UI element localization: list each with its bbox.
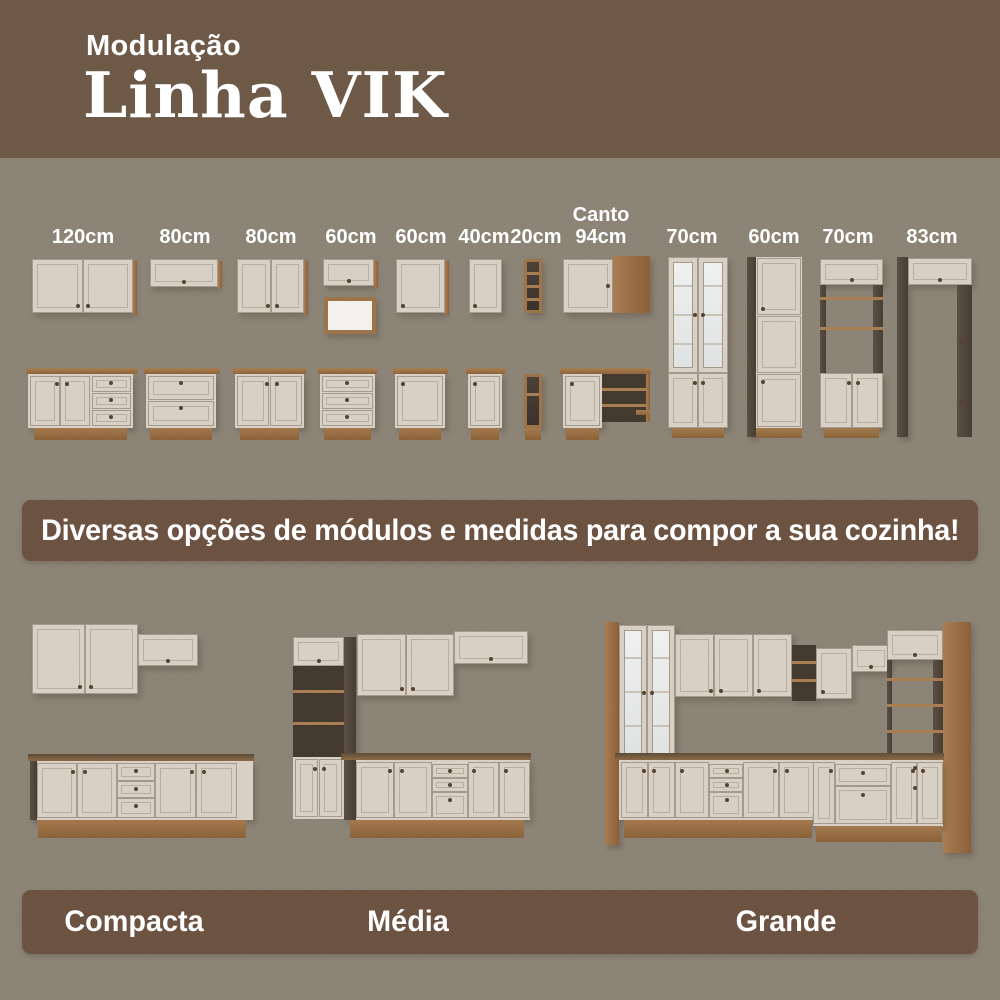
drawer-handle xyxy=(448,783,452,787)
module-canto-wall-door xyxy=(563,259,613,313)
glass-shelf xyxy=(653,691,669,693)
wood-shelf xyxy=(887,704,943,707)
door-handle xyxy=(785,769,789,773)
drawer-handle xyxy=(345,398,349,402)
wood-side-panel xyxy=(304,261,308,315)
wood-plinth xyxy=(324,428,371,440)
door-handle xyxy=(265,382,269,386)
module-40cm-wall-cabinet xyxy=(469,259,502,313)
grande-base-run-left xyxy=(619,760,814,820)
module-80cm-wall-cabinet-2door xyxy=(237,259,304,313)
door-handle xyxy=(71,770,75,774)
door-handle xyxy=(642,691,646,695)
module-label-83cm: 83cm xyxy=(892,226,972,249)
wood-side-panel xyxy=(218,261,222,289)
wood-shelf xyxy=(820,327,883,330)
module-label-canto-top: Canto xyxy=(561,204,641,227)
door-handle xyxy=(650,691,654,695)
module-label-80cm-b: 80cm xyxy=(231,226,311,249)
door-handle xyxy=(83,770,87,774)
kitchen-label-grande: Grande xyxy=(690,905,882,939)
module-60cm-wall-flip-cabinet xyxy=(323,259,374,286)
drawer-handle xyxy=(448,769,452,773)
door-handle xyxy=(693,381,697,385)
glass-shelf xyxy=(704,285,722,287)
wood-plinth xyxy=(350,820,524,838)
media-wall-flip-cabinet xyxy=(454,631,528,664)
door-handle xyxy=(757,689,761,693)
door-handle xyxy=(190,770,194,774)
wood-plinth xyxy=(816,826,942,842)
countertop xyxy=(28,754,254,761)
door-handle xyxy=(911,769,915,773)
glass-shelf xyxy=(625,725,641,727)
wood-side-panel xyxy=(374,261,378,288)
module-canto-wall-wood-return xyxy=(613,256,650,313)
wood-shelf xyxy=(293,722,344,725)
cabinet-drawer xyxy=(835,764,891,786)
module-60cm-base-cabinet xyxy=(395,374,445,428)
wood-plinth xyxy=(38,820,246,838)
door-handle xyxy=(761,307,765,311)
wood-shelf xyxy=(792,679,816,682)
module-83cm-top-cabinet xyxy=(908,258,972,285)
door-handle xyxy=(65,382,69,386)
door-handle xyxy=(179,406,183,410)
door-handle xyxy=(78,685,82,689)
module-label-70cm-a: 70cm xyxy=(652,226,732,249)
door-handle xyxy=(489,657,493,661)
wood-shelf xyxy=(527,272,539,275)
drawer-handle xyxy=(109,415,113,419)
wood-plinth xyxy=(399,428,441,440)
module-label-60cm-c: 60cm xyxy=(734,226,814,249)
module-20cm-wall-rack xyxy=(524,259,542,313)
media-tower-lower-doors xyxy=(293,757,344,819)
door-handle xyxy=(89,685,93,689)
cabinet-drawer xyxy=(432,792,468,818)
module-label-80cm-a: 80cm xyxy=(145,226,225,249)
module-label-60cm-a: 60cm xyxy=(311,226,391,249)
wood-plinth xyxy=(672,428,724,438)
countertop xyxy=(810,753,944,760)
cabinet-door xyxy=(675,634,714,697)
drawer-handle xyxy=(861,793,865,797)
wood-shelf xyxy=(602,404,646,407)
glass-shelf xyxy=(674,343,692,345)
module-canto-base-door xyxy=(563,374,602,428)
door-handle xyxy=(642,769,646,773)
wood-plinth xyxy=(525,428,541,440)
door-handle xyxy=(856,381,860,385)
media-base-run xyxy=(356,760,530,820)
module-80cm-base-cabinet xyxy=(146,374,216,428)
panel-handle xyxy=(959,400,963,404)
wood-side-panel xyxy=(943,622,971,853)
wood-shelf xyxy=(293,690,344,693)
wood-plinth xyxy=(624,820,812,838)
dark-side-panel xyxy=(30,761,37,820)
module-60cm-base-drawers xyxy=(320,374,375,428)
module-83cm-side-panel xyxy=(957,285,972,437)
door-handle xyxy=(313,767,317,771)
glass-shelf xyxy=(653,725,669,727)
media-tower-top-door xyxy=(293,637,344,666)
drawer-handle xyxy=(134,787,138,791)
door-handle xyxy=(913,653,917,657)
wood-shelf xyxy=(602,388,646,391)
wood-side-panel xyxy=(605,622,619,845)
kitchen-label-compacta: Compacta xyxy=(38,905,230,939)
door-handle xyxy=(473,382,477,386)
module-70cm-tower-top-door xyxy=(820,259,883,285)
door-handle xyxy=(570,382,574,386)
module-40cm-base-cabinet xyxy=(468,374,502,428)
cabinet-door xyxy=(757,316,801,373)
door-handle xyxy=(821,690,825,694)
glass-shelf xyxy=(625,657,641,659)
cabinet-door xyxy=(753,634,792,697)
dark-side-panel xyxy=(933,660,943,755)
wood-plinth xyxy=(824,428,879,438)
wood-side-panel xyxy=(133,261,137,315)
cabinet-drawer xyxy=(117,798,155,818)
door-handle xyxy=(850,278,854,282)
wood-plinth xyxy=(566,428,599,440)
drawer-handle xyxy=(448,798,452,802)
door-handle xyxy=(400,687,404,691)
banner: Diversas opções de módulos e medidas par… xyxy=(22,500,978,561)
door-handle xyxy=(472,769,476,773)
page-background: Modulação Linha VIK 120cm 80cm 80cm 60cm… xyxy=(0,0,1000,1000)
glass-shelf xyxy=(704,343,722,345)
wood-shelf xyxy=(527,298,539,301)
drawer-handle xyxy=(725,769,729,773)
compacta-base-run xyxy=(30,761,253,820)
grande-wall-door-cabinet xyxy=(816,648,852,699)
kitchen-label-media: Média xyxy=(312,905,504,939)
grande-tower-open-shelves xyxy=(887,660,943,755)
wood-shelf xyxy=(792,661,816,664)
module-60cm-open-niche xyxy=(324,297,376,334)
module-120cm-base-cabinet xyxy=(28,374,133,428)
page-title: Linha VIK xyxy=(83,58,448,132)
module-label-94cm: 94cm xyxy=(561,226,641,249)
door-handle xyxy=(275,382,279,386)
wood-shelf xyxy=(887,730,943,733)
wood-plinth xyxy=(756,428,802,438)
door-handle xyxy=(913,786,917,790)
door-handle xyxy=(182,280,186,284)
drawer-handle xyxy=(345,381,349,385)
media-tower-open-shelves xyxy=(293,666,344,757)
door-handle xyxy=(719,689,723,693)
wood-side-panel xyxy=(445,261,449,315)
grande-wall-open-shelf xyxy=(792,645,816,701)
door-handle xyxy=(266,304,270,308)
glass-shelf xyxy=(674,314,692,316)
banner-text: Diversas opções de módulos e medidas par… xyxy=(41,514,959,548)
door-handle xyxy=(401,382,405,386)
door-handle xyxy=(504,769,508,773)
grande-wall-run xyxy=(675,634,792,697)
glass-shelf xyxy=(674,285,692,287)
dark-side-panel xyxy=(897,257,908,437)
grande-tower-top-door xyxy=(887,630,943,660)
countertop xyxy=(341,753,531,760)
door-handle xyxy=(400,769,404,773)
door-handle xyxy=(401,304,405,308)
drawer-handle xyxy=(345,415,349,419)
countertop xyxy=(615,753,815,760)
door-handle xyxy=(652,769,656,773)
door-handle xyxy=(938,278,942,282)
cabinet-front xyxy=(148,376,214,400)
module-70cm-tower-lower-doors xyxy=(820,373,883,428)
wood-plinth xyxy=(34,428,127,440)
cabinet-door xyxy=(85,624,138,694)
module-label-120cm: 120cm xyxy=(43,226,123,249)
cabinet-door xyxy=(357,634,406,696)
door-handle xyxy=(869,665,873,669)
door-handle xyxy=(701,313,705,317)
cabinet-door xyxy=(714,634,753,697)
dark-side-panel xyxy=(887,660,892,755)
dark-side-panel xyxy=(747,257,756,437)
drawer-handle xyxy=(134,804,138,808)
module-label-70cm-b: 70cm xyxy=(808,226,888,249)
compacta-wall-flip-cabinet xyxy=(138,634,198,666)
wood-shelf xyxy=(527,285,539,288)
module-80cm-base-cabinet-2door xyxy=(235,374,304,428)
wood-shelf xyxy=(527,393,539,396)
door-handle xyxy=(179,381,183,385)
door-handle xyxy=(55,382,59,386)
drawer-handle xyxy=(109,398,113,402)
module-60cm-tall-pantry xyxy=(756,257,802,428)
door-handle xyxy=(773,769,777,773)
drawer-handle xyxy=(725,783,729,787)
drawer-handle xyxy=(109,381,113,385)
grande-glass-cabinet xyxy=(619,625,675,761)
door-handle xyxy=(275,304,279,308)
dark-side-panel xyxy=(344,637,356,820)
wood-shelf xyxy=(887,678,943,681)
module-20cm-base-rack xyxy=(524,374,542,428)
door-handle xyxy=(709,689,713,693)
compacta-wall-cabinet xyxy=(32,624,138,694)
cabinet-door xyxy=(32,624,85,694)
module-60cm-wall-cabinet xyxy=(396,259,445,313)
door-handle xyxy=(388,769,392,773)
door-handle xyxy=(317,659,321,663)
grande-base-run-right xyxy=(813,760,943,826)
door-handle xyxy=(847,381,851,385)
wood-shelf-extension xyxy=(636,410,650,415)
wood-plinth xyxy=(150,428,212,440)
door-handle xyxy=(166,659,170,663)
cabinet-door xyxy=(83,259,133,313)
door-handle xyxy=(322,767,326,771)
glass-shelf xyxy=(653,657,669,659)
module-70cm-tall-glass-cabinet xyxy=(668,257,728,373)
door-handle xyxy=(693,313,697,317)
cabinet-front xyxy=(148,401,214,426)
module-80cm-wall-cabinet xyxy=(150,259,218,287)
door-handle xyxy=(701,381,705,385)
door-handle xyxy=(347,279,351,283)
drawer-handle xyxy=(725,798,729,802)
module-70cm-tall-lower-doors xyxy=(668,373,728,428)
grande-wall-flip-cabinet xyxy=(852,645,890,672)
door-handle xyxy=(411,687,415,691)
drawer-handle xyxy=(861,771,865,775)
cabinet-drawer xyxy=(835,786,891,824)
glass-shelf xyxy=(625,691,641,693)
door-handle xyxy=(76,304,80,308)
door-handle xyxy=(606,284,610,288)
door-handle xyxy=(761,380,765,384)
door-handle xyxy=(921,769,925,773)
drawer-handle xyxy=(134,769,138,773)
door-handle xyxy=(202,770,206,774)
door-handle xyxy=(680,769,684,773)
module-120cm-wall-cabinet xyxy=(32,259,133,313)
module-70cm-tower-open-shelves xyxy=(820,285,883,373)
door-handle xyxy=(473,304,477,308)
door-handle xyxy=(829,769,833,773)
glass-shelf xyxy=(704,314,722,316)
cabinet-drawer xyxy=(709,792,743,818)
door-handle xyxy=(86,304,90,308)
panel-handle xyxy=(959,340,963,344)
media-wall-cabinet xyxy=(357,634,454,696)
header-band: Modulação Linha VIK xyxy=(0,0,1000,158)
wood-plinth xyxy=(240,428,299,440)
wood-shelf xyxy=(820,297,883,300)
wood-plinth xyxy=(471,428,499,440)
